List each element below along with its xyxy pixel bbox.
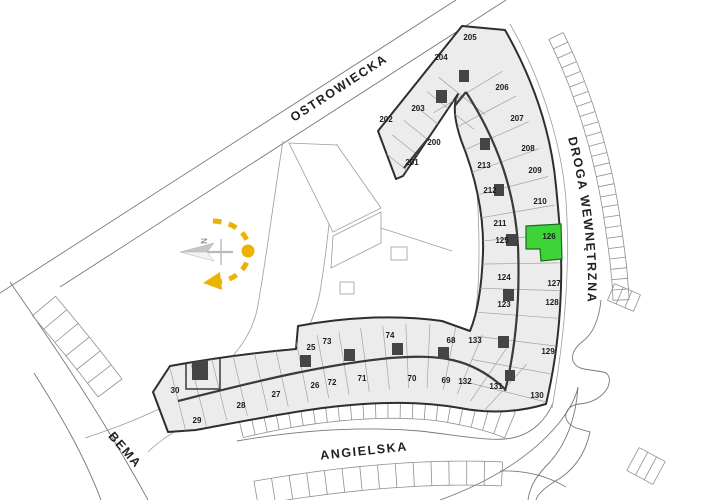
parking-stall-line <box>254 481 258 500</box>
parking-stall-line <box>602 205 618 208</box>
unit-label-127: 127 <box>547 279 561 288</box>
unit-label-208: 208 <box>521 144 535 153</box>
parking-layer <box>33 33 666 500</box>
parking-stall-line <box>378 465 380 489</box>
unit-label-123: 123 <box>497 300 511 309</box>
unit-label-206: 206 <box>495 83 509 92</box>
unit-label-71: 71 <box>358 374 367 383</box>
parking-stall-line <box>644 457 656 480</box>
parking-stall-line <box>610 257 626 259</box>
unit-label-212: 212 <box>483 186 497 195</box>
unit-label-200: 200 <box>427 138 441 147</box>
unit-label-125: 125 <box>495 236 509 245</box>
parking-stall-line <box>44 310 67 329</box>
unit-label-213: 213 <box>477 161 491 170</box>
parking-stall-line <box>586 132 601 137</box>
parking-stall-line <box>627 448 639 471</box>
unit-label-211: 211 <box>494 219 507 228</box>
parking-stall-line <box>98 379 122 397</box>
parking-stall-line <box>360 467 362 491</box>
parking-row-edge <box>615 284 641 295</box>
unit-label-70: 70 <box>408 374 417 383</box>
unit-label-124: 124 <box>497 273 511 282</box>
unit-label-72: 72 <box>328 378 337 387</box>
parking-stall-line <box>395 464 397 488</box>
site-plan: 2022032042052002012062072082092132122102… <box>0 0 707 500</box>
parking-stall-line <box>604 215 620 217</box>
unit-label-210: 210 <box>533 197 547 206</box>
parking-stall-line <box>580 112 595 117</box>
parking-stall-line <box>600 194 616 197</box>
unit-label-74: 74 <box>386 331 395 340</box>
parking-stall-line <box>598 184 614 187</box>
parking-stall-line <box>558 52 573 59</box>
street-label-bema: BEMA <box>106 429 145 471</box>
parking-stall-line <box>501 462 502 486</box>
parking-stall-line <box>553 42 568 49</box>
parking-stall-line <box>653 462 665 485</box>
parking-stall-line <box>613 300 629 301</box>
site-plan-page: 2022032042052002012062072082092132122102… <box>0 0 707 500</box>
road-bema-edge <box>10 282 148 500</box>
north-label: N <box>200 238 209 244</box>
parking-stall-line <box>484 461 485 485</box>
unit-label-201: 201 <box>405 158 419 167</box>
parking-stall-line <box>88 365 112 383</box>
parking-stall-line <box>431 462 432 486</box>
unit-label-30: 30 <box>171 386 180 395</box>
parking-stall-line <box>589 142 605 146</box>
parking-stall-line <box>272 478 276 500</box>
parking-stall-line <box>613 289 629 290</box>
unit-label-68: 68 <box>447 336 456 345</box>
parking-stall-line <box>66 337 89 356</box>
unit-label-129: 129 <box>541 347 555 356</box>
parking-stall-line <box>594 163 610 167</box>
unit-label-25: 25 <box>307 343 316 352</box>
parking-stall-line <box>608 284 615 301</box>
parking-stall-line <box>33 296 56 315</box>
parking-row <box>608 284 641 312</box>
street-label-angielska: ANGIELSKA <box>320 439 409 462</box>
unit-label-69: 69 <box>442 376 451 385</box>
parking-row <box>254 461 503 500</box>
parking-stall-line <box>608 247 624 249</box>
parking-stall-line <box>562 62 577 68</box>
selected-unit-label: 126 <box>542 232 556 241</box>
unit-label-130: 130 <box>530 391 544 400</box>
parking-stall-line <box>505 412 516 438</box>
parking-stall-line <box>611 268 627 270</box>
parking-stall-line <box>634 295 641 312</box>
parking-stall-line <box>605 226 621 228</box>
unit-label-209: 209 <box>528 166 542 175</box>
courtyard-feature <box>391 247 407 260</box>
parking-stall-line <box>342 469 345 493</box>
courtyard-feature <box>340 282 354 294</box>
parking-stall-line <box>413 463 414 487</box>
parking-row-edge <box>627 470 653 484</box>
parking-stall-line <box>573 91 588 96</box>
parking-stall-line <box>577 101 592 106</box>
parking-stall-line <box>77 351 101 370</box>
street-label-ostrowiecka: OSTROWIECKA <box>288 51 390 124</box>
parking-stall-line <box>324 471 327 495</box>
unit-label-204: 204 <box>434 53 448 62</box>
sun-dot <box>242 245 255 258</box>
parking-stall-line <box>570 81 585 87</box>
unit-label-27: 27 <box>272 390 281 399</box>
road-bema-edge <box>34 373 101 500</box>
sun-arrow-head <box>203 272 222 290</box>
unit-label-202: 202 <box>379 115 393 124</box>
unit-label-207: 207 <box>510 114 524 123</box>
street-label-droga-wewnetrzna: DROGA WEWNĘTRZNA <box>565 135 599 303</box>
parking-stall-line <box>549 33 563 40</box>
parking-stall-line <box>596 173 612 177</box>
parking-stall-line <box>607 236 623 238</box>
parking-stall-line <box>289 475 293 499</box>
unit-label-28: 28 <box>237 401 246 410</box>
unit-label-205: 205 <box>463 33 477 42</box>
parking-stall-line <box>636 452 648 475</box>
parking-row-edge <box>243 418 504 438</box>
unit-label-29: 29 <box>193 416 202 425</box>
north-needle-head <box>180 252 214 261</box>
unit-label-132: 132 <box>458 377 472 386</box>
parking-stall-line <box>583 122 598 127</box>
parking-row-edge <box>33 316 99 397</box>
compass: N <box>180 221 255 290</box>
unit-label-128: 128 <box>545 298 559 307</box>
parking-row-edge <box>608 300 634 311</box>
parking-stall-line <box>307 473 310 497</box>
parking-row <box>627 448 665 485</box>
parking-stall-line <box>566 71 581 77</box>
parking-stall-line <box>625 291 632 308</box>
unit-label-73: 73 <box>323 337 332 346</box>
unit-label-131: 131 <box>489 382 503 391</box>
parking-row-edge <box>639 448 665 462</box>
unit-label-26: 26 <box>311 381 320 390</box>
unit-label-203: 203 <box>411 104 425 113</box>
parking-stall-line <box>612 278 628 279</box>
parking-stall-line <box>55 323 78 342</box>
unit-label-133: 133 <box>468 336 482 345</box>
parking-stall-line <box>592 153 608 157</box>
